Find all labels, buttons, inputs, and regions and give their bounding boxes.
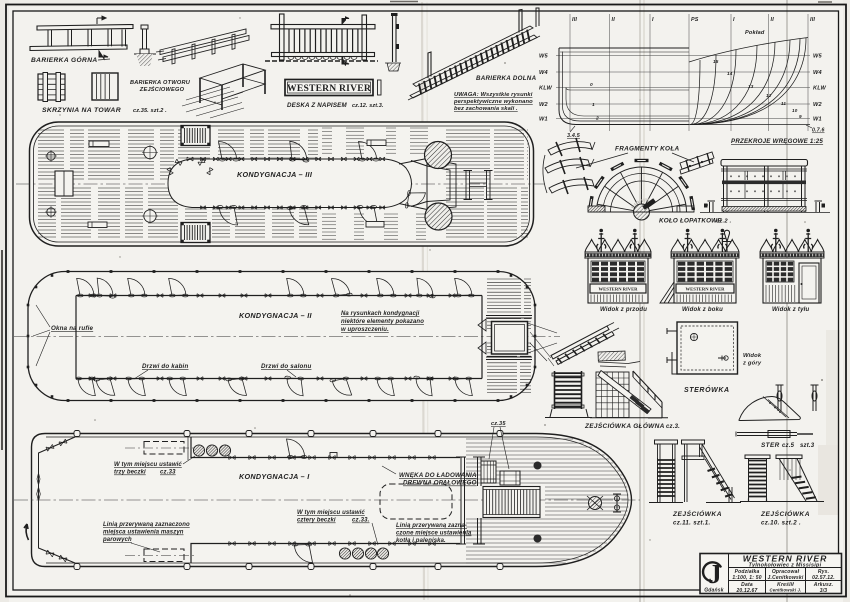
svg-text:PRZEKROJE WRĘGOWE 1:25: PRZEKROJE WRĘGOWE 1:25	[731, 138, 823, 145]
svg-text:KLW: KLW	[813, 86, 827, 92]
svg-text:I: I	[733, 17, 735, 23]
svg-text:3.4.5: 3.4.5	[567, 133, 581, 139]
svg-text:W tym miejscu ustawić: W tym miejscu ustawić	[114, 462, 182, 468]
svg-text:Drzwi do salonu: Drzwi do salonu	[261, 363, 311, 370]
svg-text:W5: W5	[539, 54, 548, 60]
svg-text:FRAGMENTY KOŁA: FRAGMENTY KOŁA	[615, 146, 680, 153]
svg-text:13: 13	[748, 84, 754, 89]
svg-text:Widok z tyłu: Widok z tyłu	[772, 307, 809, 313]
svg-text:niektóre elementy pokazano: niektóre elementy pokazano	[341, 319, 424, 325]
svg-text:ZEJŚCIÓWKA: ZEJŚCIÓWKA	[672, 509, 722, 518]
svg-text:0: 0	[590, 82, 593, 88]
svg-text:cz.35: cz.35	[491, 421, 506, 427]
svg-text:UWAGA: Wszystkie rysunki: UWAGA: Wszystkie rysunki	[454, 92, 533, 98]
svg-text:W1: W1	[539, 117, 548, 123]
svg-text:WESTERN RIVER: WESTERN RIVER	[686, 287, 726, 292]
svg-text:20.12.67: 20.12.67	[735, 588, 757, 594]
svg-text:DESKA Z NAPISEM: DESKA Z NAPISEM	[287, 102, 347, 109]
svg-text:ZEJŚCIÓWKA GŁÓWNA: ZEJŚCIÓWKA GŁÓWNA	[584, 421, 665, 430]
svg-text:1:100, 1: 50: 1:100, 1: 50	[732, 575, 761, 581]
svg-text:II: II	[771, 17, 775, 23]
svg-text:WESTERN RIVER: WESTERN RIVER	[599, 287, 639, 292]
svg-text:cz.5: cz.5	[782, 443, 795, 449]
svg-text:III: III	[810, 17, 815, 23]
svg-text:BARIERKA OTWORU: BARIERKA OTWORU	[130, 80, 191, 86]
svg-text:KOŁO ŁOPATKOWE: KOŁO ŁOPATKOWE	[659, 218, 722, 225]
svg-text:J.Cenitkowski: J.Cenitkowski	[768, 575, 804, 581]
svg-text:12: 12	[766, 93, 772, 98]
svg-text:cz.2 .: cz.2 .	[716, 219, 732, 225]
svg-text:KONDYGNACJA – I: KONDYGNACJA – I	[239, 472, 310, 481]
svg-text:Linią przerywaną zaznaczono: Linią przerywaną zaznaczono	[103, 522, 190, 528]
svg-text:1: 1	[592, 102, 595, 108]
svg-text:DREWNA OPAŁOWEGO: DREWNA OPAŁOWEGO	[403, 480, 477, 487]
svg-text:cz.33.: cz.33.	[352, 518, 370, 524]
svg-text:W1: W1	[813, 117, 822, 123]
svg-text:WNĘKA DO ŁADOWANIA: WNĘKA DO ŁADOWANIA	[399, 472, 477, 479]
svg-text:cz.10. szt.2 .: cz.10. szt.2 .	[761, 520, 801, 527]
svg-text:cz.11. szt.1.: cz.11. szt.1.	[673, 520, 711, 527]
svg-text:Widok z przodu: Widok z przodu	[600, 307, 647, 313]
svg-text:III: III	[572, 17, 577, 23]
svg-text:ZEJŚCIÓWKA: ZEJŚCIÓWKA	[760, 509, 810, 518]
svg-text:bez zachowania skali .: bez zachowania skali .	[454, 106, 518, 112]
svg-text:parowych: parowych	[102, 537, 132, 543]
svg-text:STER: STER	[761, 442, 780, 449]
svg-text:BARIERKA GÓRNA: BARIERKA GÓRNA	[31, 55, 98, 64]
svg-text:miejsca ustawienia maszyn: miejsca ustawienia maszyn	[103, 530, 184, 536]
svg-text:trzy beczki: trzy beczki	[114, 470, 146, 476]
svg-text:KONDYGNACJA – II: KONDYGNACJA – II	[239, 311, 313, 320]
svg-text:W4: W4	[813, 70, 822, 76]
svg-text:W4: W4	[539, 70, 548, 76]
svg-text:11: 11	[781, 101, 786, 106]
svg-text:15: 15	[713, 59, 719, 64]
svg-text:BARIERKA DOLNA: BARIERKA DOLNA	[476, 75, 537, 82]
svg-text:z góry: z góry	[742, 361, 762, 367]
svg-text:Linią przerywaną zazna-: Linią przerywaną zazna-	[396, 523, 467, 529]
svg-text:10: 10	[792, 108, 798, 113]
svg-text:STERÓWKA: STERÓWKA	[684, 385, 730, 394]
svg-text:cz.3.: cz.3.	[666, 424, 680, 430]
svg-text:Widok: Widok	[743, 353, 762, 359]
svg-text:kotła i paleniska.: kotła i paleniska.	[396, 538, 446, 544]
svg-text:2: 2	[595, 116, 599, 122]
svg-text:SKRZYNIA NA TOWAR: SKRZYNIA NA TOWAR	[42, 107, 121, 114]
svg-text:W tym miejscu ustawić: W tym miejscu ustawić	[297, 510, 365, 516]
svg-text:14: 14	[727, 71, 733, 76]
svg-text:9: 9	[799, 114, 802, 119]
svg-text:Pokład: Pokład	[745, 30, 765, 36]
svg-text:Tylnokołowiec z Missisipi: Tylnokołowiec z Missisipi	[749, 562, 822, 568]
svg-text:3/3: 3/3	[820, 588, 828, 594]
svg-text:KLW: KLW	[539, 86, 553, 92]
svg-text:W2: W2	[539, 102, 548, 108]
svg-text:WESTERN RIVER: WESTERN RIVER	[287, 83, 372, 94]
svg-text:szt.3: szt.3	[800, 443, 815, 449]
svg-text:0.7.6: 0.7.6	[812, 128, 825, 134]
svg-text:ZEJŚCIOWEGO: ZEJŚCIOWEGO	[139, 86, 185, 93]
svg-text:PS: PS	[691, 17, 699, 23]
svg-text:Cenitkowski J.: Cenitkowski J.	[770, 588, 802, 593]
svg-text:Gdańsk: Gdańsk	[704, 588, 724, 594]
svg-text:02.57.12.: 02.57.12.	[812, 575, 835, 581]
svg-text:cztery beczki: cztery beczki	[297, 518, 336, 524]
svg-text:I: I	[652, 17, 654, 23]
svg-text:w uproszczeniu.: w uproszczeniu.	[341, 327, 389, 333]
svg-text:Na rysunkach kondygnacji: Na rysunkach kondygnacji	[341, 311, 420, 317]
svg-text:perspektywiczne wykonano: perspektywiczne wykonano	[453, 99, 533, 105]
svg-text:cz.33: cz.33	[160, 470, 176, 476]
svg-text:Widok z boku: Widok z boku	[682, 307, 723, 313]
svg-text:Drzwi do kabin: Drzwi do kabin	[142, 363, 188, 370]
svg-text:W5: W5	[813, 54, 822, 60]
svg-text:II: II	[612, 17, 616, 23]
svg-text:KONDYGNACJA – III: KONDYGNACJA – III	[237, 170, 313, 179]
svg-text:W2: W2	[813, 102, 822, 108]
svg-text:Okna na rufie: Okna na rufie	[51, 325, 94, 332]
svg-text:cz.35. szt.2 .: cz.35. szt.2 .	[133, 108, 167, 114]
svg-text:cz.12. szt.3.: cz.12. szt.3.	[352, 103, 384, 109]
